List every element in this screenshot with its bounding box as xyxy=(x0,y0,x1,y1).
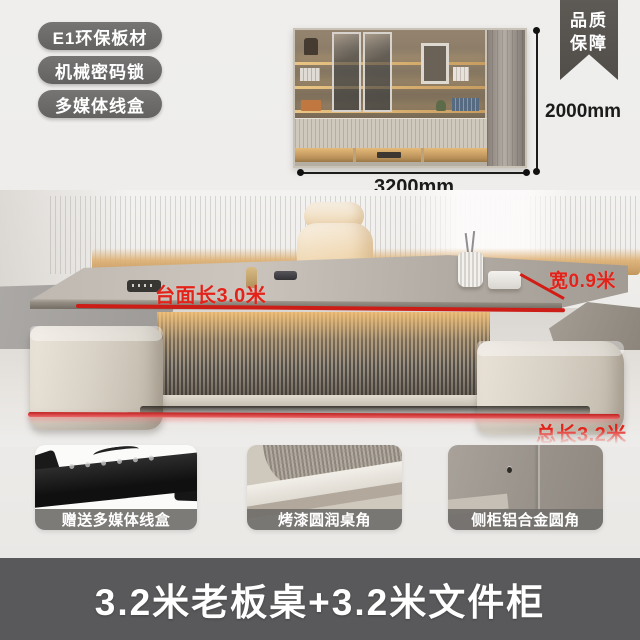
desk-white-box xyxy=(488,271,521,289)
feature-label: 侧柜铝合金圆角 xyxy=(448,509,603,530)
cabinet-side-panel xyxy=(487,30,525,166)
decor-orange-box xyxy=(301,100,321,111)
badge-multimedia-box: 多媒体线盒 xyxy=(38,90,162,118)
pen-cup xyxy=(458,252,483,287)
feature-card-cabinet-corner: 侧柜铝合金圆角 xyxy=(448,445,603,530)
cabinet-shelving xyxy=(295,30,485,118)
decor-vase xyxy=(304,38,318,55)
decor-books xyxy=(300,68,320,81)
decor-art-frame xyxy=(421,43,449,84)
badge-mechanical-lock: 机械密码锁 xyxy=(38,56,162,84)
height-dimension-line xyxy=(536,31,538,171)
cabinet-photo xyxy=(293,28,527,168)
quality-ribbon: 品质 保障 xyxy=(560,0,618,80)
niche-divider xyxy=(353,148,356,162)
cabinet-lit-niche xyxy=(295,148,487,162)
decor-file-holders xyxy=(452,98,479,111)
cabinet-height-label: 2000mm xyxy=(545,101,621,123)
dimension-endpoint-dot xyxy=(533,27,540,34)
desk-stapler xyxy=(274,271,297,280)
annotation-width: 宽0.9米 xyxy=(549,266,616,293)
desk-fluted-panel xyxy=(157,312,490,398)
feature-card-desk-corner: 烤漆圆润桌角 xyxy=(247,445,402,530)
product-title: 3.2米老板桌+3.2米文件柜 xyxy=(95,572,545,626)
cabinet-corner-hole xyxy=(507,467,512,473)
annotation-desktop-length: 台面长3.0米 xyxy=(155,279,266,308)
cabinet-base xyxy=(295,162,487,166)
decor-niche-books xyxy=(377,152,401,158)
title-banner: 3.2米老板桌+3.2米文件柜 xyxy=(0,558,640,640)
dimension-endpoint-dot xyxy=(297,169,304,176)
cabinet-lower-doors xyxy=(295,118,487,148)
decor-books xyxy=(453,67,469,81)
width-dimension-line xyxy=(301,172,527,174)
dimension-endpoint-dot xyxy=(533,168,540,175)
feature-card-multimedia-box: 赠送多媒体线盒 xyxy=(35,445,197,530)
badge-eco-board: E1环保板材 xyxy=(38,22,162,50)
feature-label: 赠送多媒体线盒 xyxy=(35,509,197,530)
quality-ribbon-line2: 保障 xyxy=(560,32,618,55)
product-image-page: E1环保板材 机械密码锁 多媒体线盒 品质 保障 xyxy=(0,0,640,640)
quality-ribbon-line1: 品质 xyxy=(560,9,618,32)
feature-label: 烤漆圆润桌角 xyxy=(247,509,402,530)
niche-divider xyxy=(421,148,424,162)
cabinet-glass-doors xyxy=(331,32,393,112)
dimension-endpoint-dot xyxy=(523,169,530,176)
decor-plant xyxy=(436,100,446,111)
